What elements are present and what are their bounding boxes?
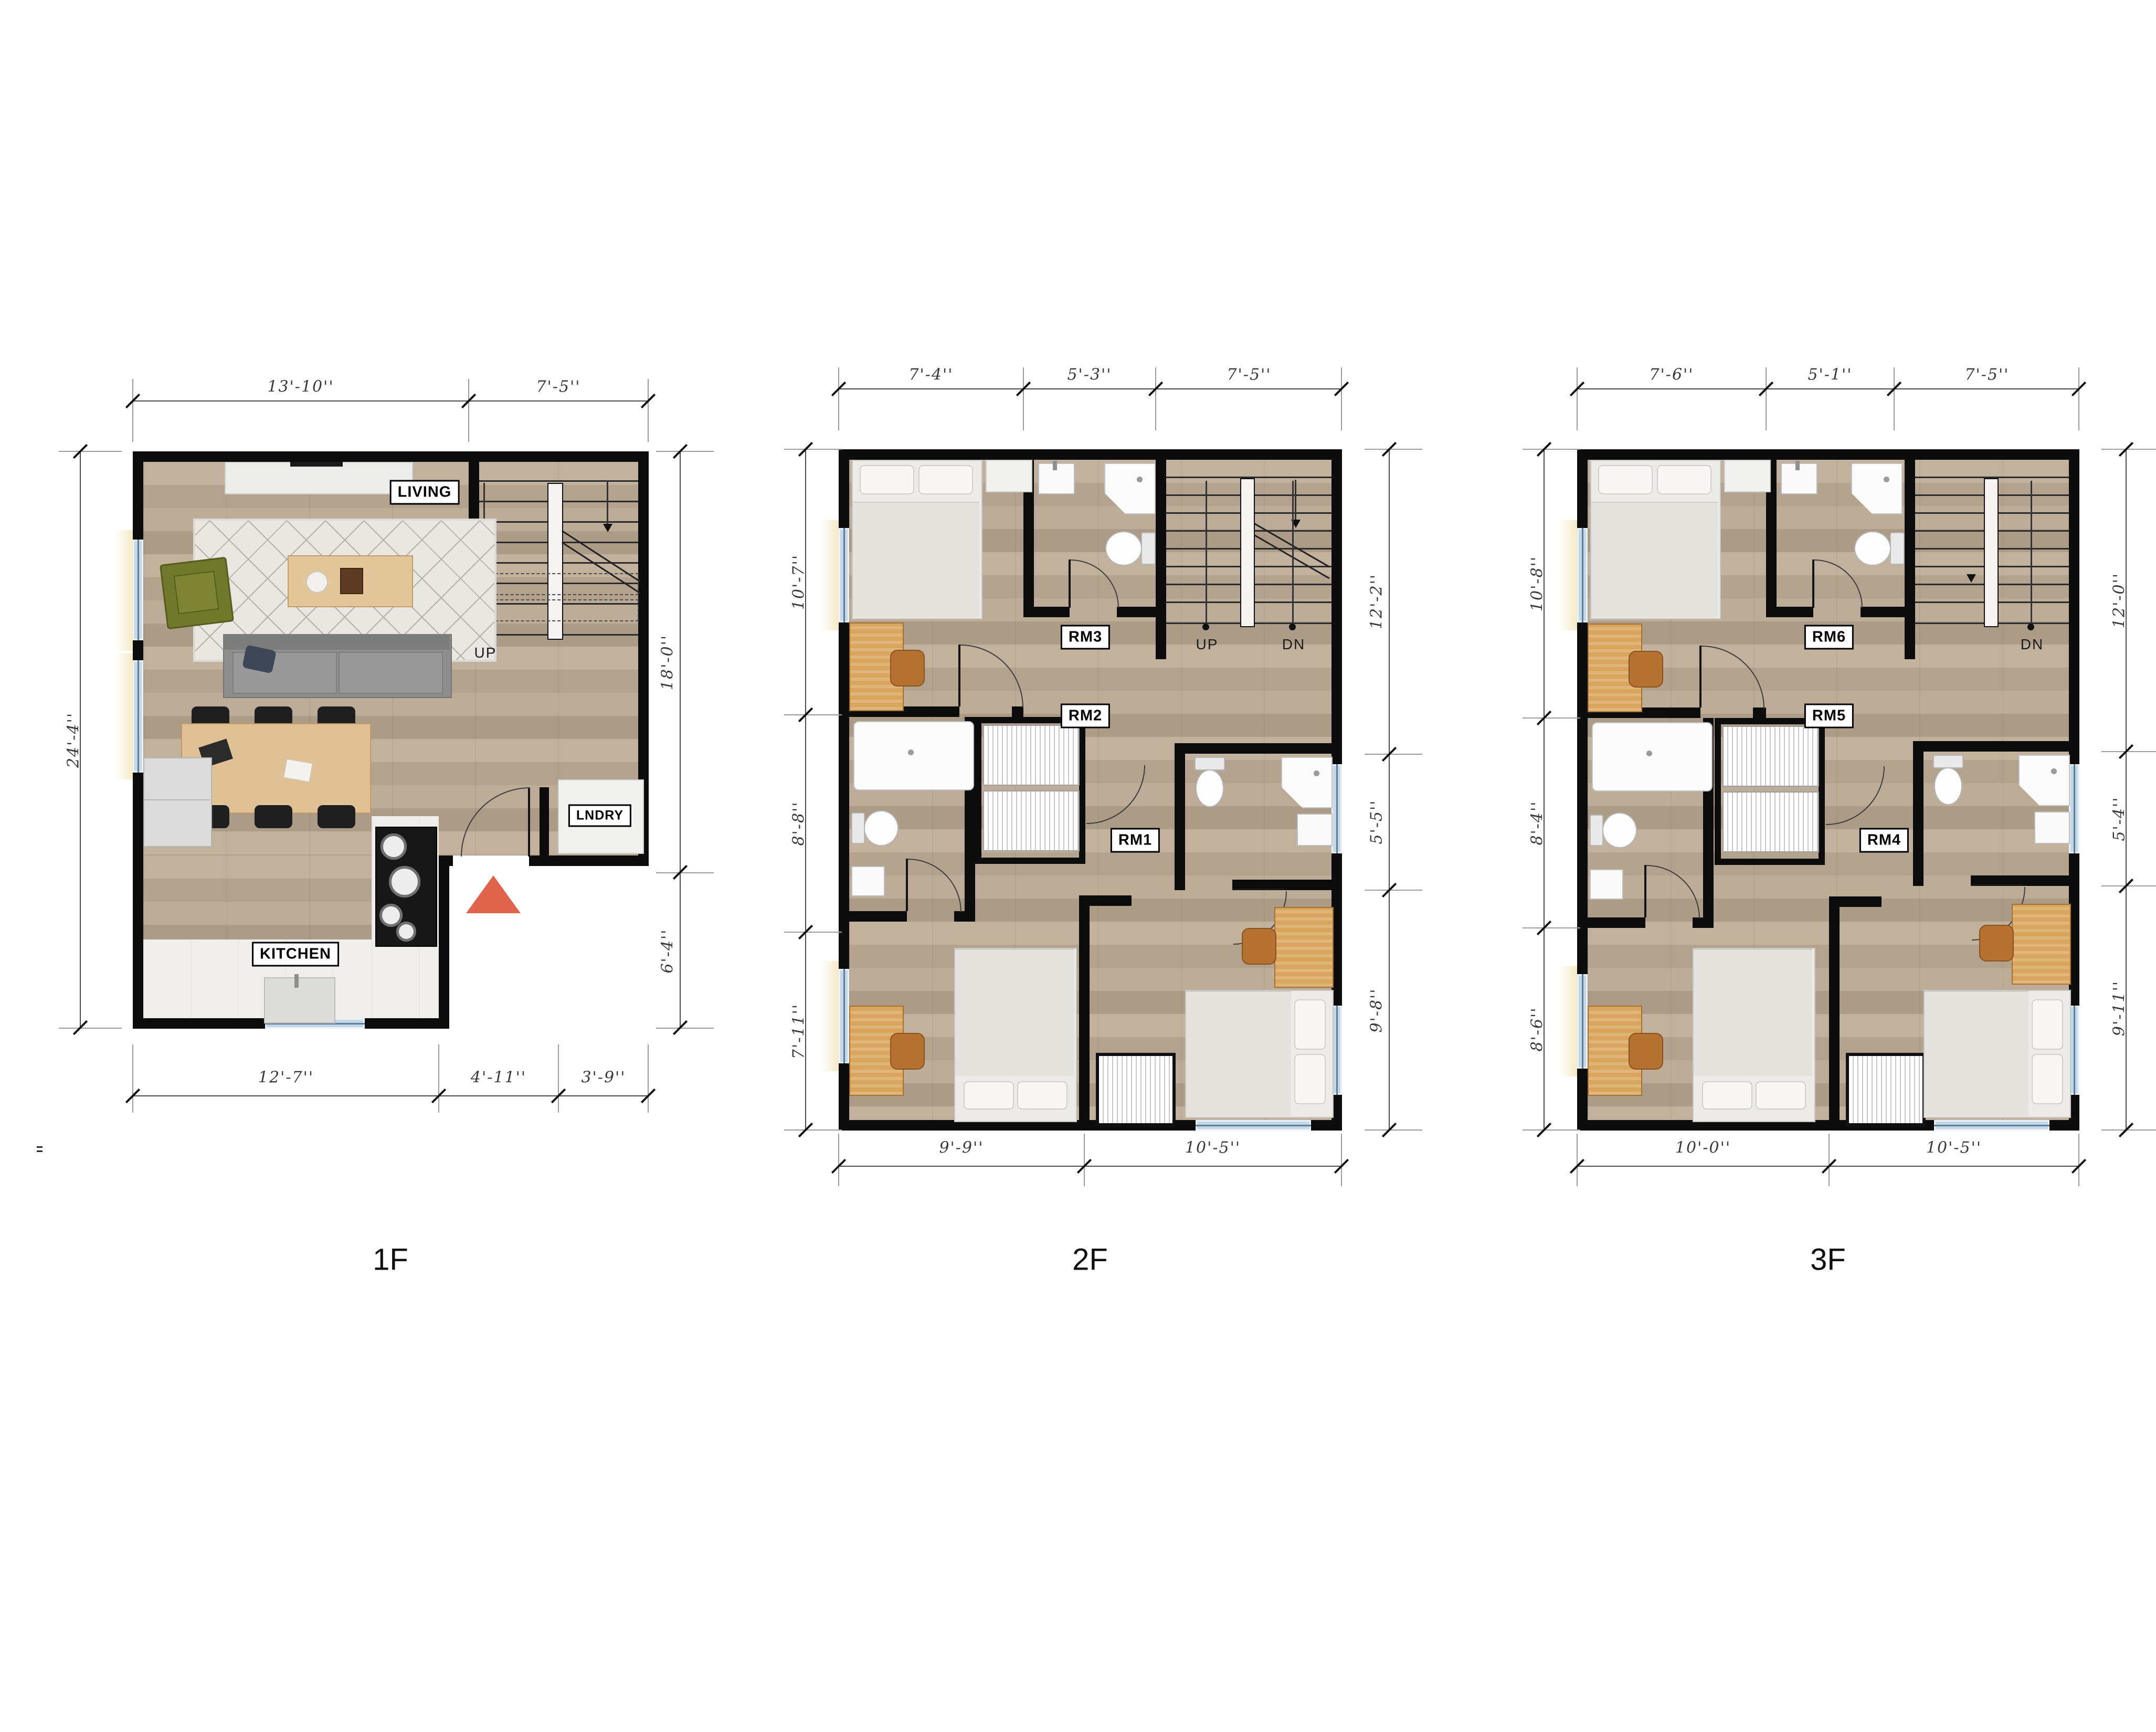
window [839,528,849,622]
dim-label: 18'-0'' [659,635,677,690]
wall-segment [1753,707,1766,718]
stair-down-line [607,480,608,525]
dn-start-dot [1289,624,1296,630]
stair-wall [1905,460,1915,659]
window [133,540,143,640]
toilet-bowl [1196,769,1224,807]
stair-up-label: UP [1196,636,1219,653]
stair-dn-label: DN [1282,636,1305,653]
dim-label: 7'-5'' [1227,366,1271,384]
bathtub [853,721,974,790]
desk-chair [890,1033,925,1070]
rm6-label: RM6 [1804,625,1854,650]
dim-label: 13'-10'' [267,378,334,396]
closet-frame [1715,718,1721,865]
dim-label: 5'-3'' [1067,366,1112,384]
window-glow [115,530,133,651]
laundry-wall [540,787,549,856]
floor-plan-sheet: UP [0,0,2156,1732]
door-leaf [1644,865,1646,917]
dim-label: 5'-5'' [1368,799,1386,844]
window-glow [1559,966,1577,1076]
dim-label: 5'-4'' [2110,796,2129,841]
shower-drain [1137,477,1143,482]
stove-burner [396,922,416,942]
closet-shelf [1846,1053,1926,1126]
dim-label: 9'-11'' [2110,980,2129,1036]
wall-segment [1840,896,1882,907]
dn-start-dot [2027,624,2034,630]
bed-pillow [1657,465,1711,494]
floor-title-2f: 2F [1072,1242,1108,1277]
toilet-bowl [1854,531,1891,566]
up-start-dot [1202,624,1209,630]
dn-stem-line [1292,481,1294,627]
wall-segment [1829,896,1840,1120]
bed-duvet [1694,949,1812,1076]
stove-burner [381,833,407,860]
nightstand [986,460,1032,492]
faucet [1795,461,1800,470]
rm4-label: RM4 [1859,828,1909,853]
laundry-label: LNDRY [568,805,631,827]
window [2069,764,2079,853]
dim-label: 8'-8'' [790,801,808,846]
closet-shelf [983,725,1080,786]
bath-sink [2034,811,2070,844]
window-glow [1559,520,1577,630]
bath-sink [1297,814,1333,846]
closet-shelf [1096,1053,1176,1126]
wall-segment [1693,917,1714,928]
dim-label: 9'-8'' [1368,988,1386,1032]
desk [2012,904,2071,985]
dim-label: 7'-4'' [908,366,953,384]
rm1-label: RM1 [1111,828,1160,853]
fridge [143,757,212,847]
dn-stem-line [2031,481,2032,627]
toilet-tank [1933,755,1963,768]
toilet-bowl [1105,531,1142,566]
wall-segment [1175,880,1185,890]
wall-segment [1117,607,1166,617]
door-leaf [1232,888,1285,890]
window-glow [115,653,133,779]
wall-segment [1861,607,1915,617]
dim-label: 12'-7'' [258,1069,314,1087]
bed-duvet [1925,991,2028,1116]
bed-duvet [853,502,979,617]
dim-label: 24'-4'' [65,712,83,768]
desk-chair [1242,928,1276,965]
toilet-bowl [864,810,899,846]
dim-label: 10'-7'' [790,554,808,610]
floor-title-1f: 1F [373,1242,408,1277]
window-glow [821,520,839,630]
dim-label: 5'-1'' [1808,366,1852,384]
wall-segment [439,856,449,1029]
shower-drain [2051,768,2057,774]
desk-chair [1979,925,2014,962]
dim-label: 7'-5'' [536,378,580,396]
bed-pillow [964,1081,1014,1110]
shower-drain [1884,477,1889,482]
toilet-tank [1890,532,1905,565]
kitchen-faucet [294,974,299,988]
understair-dashed [490,599,639,621]
bed-duvet [955,949,1074,1076]
dim-label: 9'-9'' [939,1139,984,1157]
bed-pillow [1294,999,1326,1050]
down-arrowhead-icon [1967,574,1976,583]
wall-segment [839,449,1342,460]
bed-duvet [1186,991,1291,1116]
desk-chair [890,650,925,687]
tv-console [225,462,413,494]
stair-up-label: UP [474,645,497,661]
dim-label: 7'-11'' [790,1004,808,1059]
window [839,969,849,1063]
wall-segment [1175,743,1331,754]
wall-segment [1175,743,1185,890]
closet-frame [1819,718,1825,865]
plan-2f: UP DN [839,449,1342,1131]
closet-frame [975,858,1085,864]
wall-segment [1913,741,2069,752]
wall-segment [1090,895,1132,906]
door-leaf [958,645,960,706]
dining-chair [255,805,292,828]
bed-pillow [918,465,973,494]
stair-dn-label: DN [2021,636,2044,653]
kitchen-sink [264,977,335,1023]
dim-label: 8'-4'' [1528,800,1547,845]
entry-marker-triangle [466,875,521,913]
wall-segment [1012,706,1023,717]
table-dish [306,571,328,593]
window [1577,528,1588,622]
dining-chair [318,805,355,828]
dim-label: 10'-0'' [1675,1139,1731,1157]
wall-segment [1023,607,1070,617]
plan-3f: DN [1577,449,2079,1131]
bed-pillow [1598,465,1653,494]
desk-chair [1629,651,1663,688]
rm2-label: RM2 [1061,704,1110,728]
dim-label: 7'-5'' [1964,366,2009,384]
toilet-bowl [1934,767,1962,805]
dim-label: 12'-0'' [2110,573,2129,628]
bed-pillow [1702,1081,1752,1110]
door-leaf [1812,559,1814,608]
dim-label: 8'-6'' [1528,1007,1547,1051]
kitchen-label: KITCHEN [252,942,339,967]
stair-down-line [1295,480,1296,522]
door-leaf [1971,884,2023,886]
window [1934,1120,2049,1131]
wall-segment [1577,449,2079,460]
plan-1f: UP [133,451,649,1029]
bed-pillow [1756,1081,1806,1110]
stair-center-rail [1240,478,1255,627]
wall-segment [1079,895,1090,1120]
wall-segment [1766,607,1813,617]
dim-label: 10'-5'' [1926,1139,1982,1157]
wall-segment [529,856,649,866]
rm5-label: RM5 [1804,704,1854,728]
toilet-tank [1195,757,1225,770]
up-stem-line [1206,481,1207,627]
window [1577,974,1588,1069]
closet-frame [1079,717,1085,864]
door-leaf [906,859,908,911]
stair-tread [479,480,638,482]
closet-frame [1715,859,1825,865]
bed-pillow [2032,999,2063,1050]
tub-drain [908,749,914,755]
fridge-split [143,799,210,800]
armchair-seat [174,571,219,615]
down-arrowhead-icon [603,524,612,532]
stove-burner [389,866,420,897]
door-leaf [1069,559,1071,608]
bathtub [1592,722,1713,791]
wall-segment [1913,875,1924,886]
stair-wall [1156,460,1166,659]
stair-center-rail [1984,478,1999,627]
shower-drain [1314,770,1319,776]
nightstand [1724,460,1771,492]
wall-segment [1913,741,1924,886]
wall-segment [133,451,649,462]
desk [1274,907,1334,988]
tv-screen [290,462,343,467]
bath-sink [1590,869,1623,900]
bed-pillow [1294,1054,1326,1104]
dim-label: 4'-11'' [471,1069,526,1087]
toilet-tank [1141,532,1156,565]
wall-segment [954,911,975,922]
window [133,660,143,773]
wall-segment [1588,917,1645,928]
dim-label: 6'-4'' [659,928,677,973]
toilet-bowl [1602,812,1637,848]
closet-shelf [1722,791,1819,852]
bed-pillow [860,465,914,494]
closet-shelf [983,790,1080,851]
rm3-label: RM3 [1061,625,1110,650]
window-glow [821,961,839,1071]
closet-shelf [1722,726,1819,787]
wall-segment [849,911,907,922]
closet-frame [975,717,981,864]
table-decor [340,568,363,594]
desk-chair [1629,1033,1663,1070]
floor-title-3f: 3F [1810,1242,1846,1277]
door-leaf [1699,646,1701,707]
dim-label: 10'-5'' [1185,1139,1241,1157]
bed-duvet [1591,502,1718,617]
window [1331,764,1342,853]
dim-label: 10'-8'' [1528,556,1547,611]
bed-pillow [1017,1081,1068,1110]
toilet-tank [851,812,865,844]
bath-sink [851,866,885,896]
dim-label: 7'-6'' [1649,366,1694,384]
dim-label: 12'-2'' [1368,574,1386,629]
tub-drain [1646,751,1652,756]
living-label: LIVING [390,480,460,505]
faucet [1053,461,1057,470]
window [1196,1120,1311,1131]
bed-pillow [2032,1054,2063,1104]
toilet-tank [1590,815,1603,846]
dim-label: 3'-9'' [581,1069,626,1087]
sofa-cushion [339,652,443,694]
stove-burner [379,904,403,927]
